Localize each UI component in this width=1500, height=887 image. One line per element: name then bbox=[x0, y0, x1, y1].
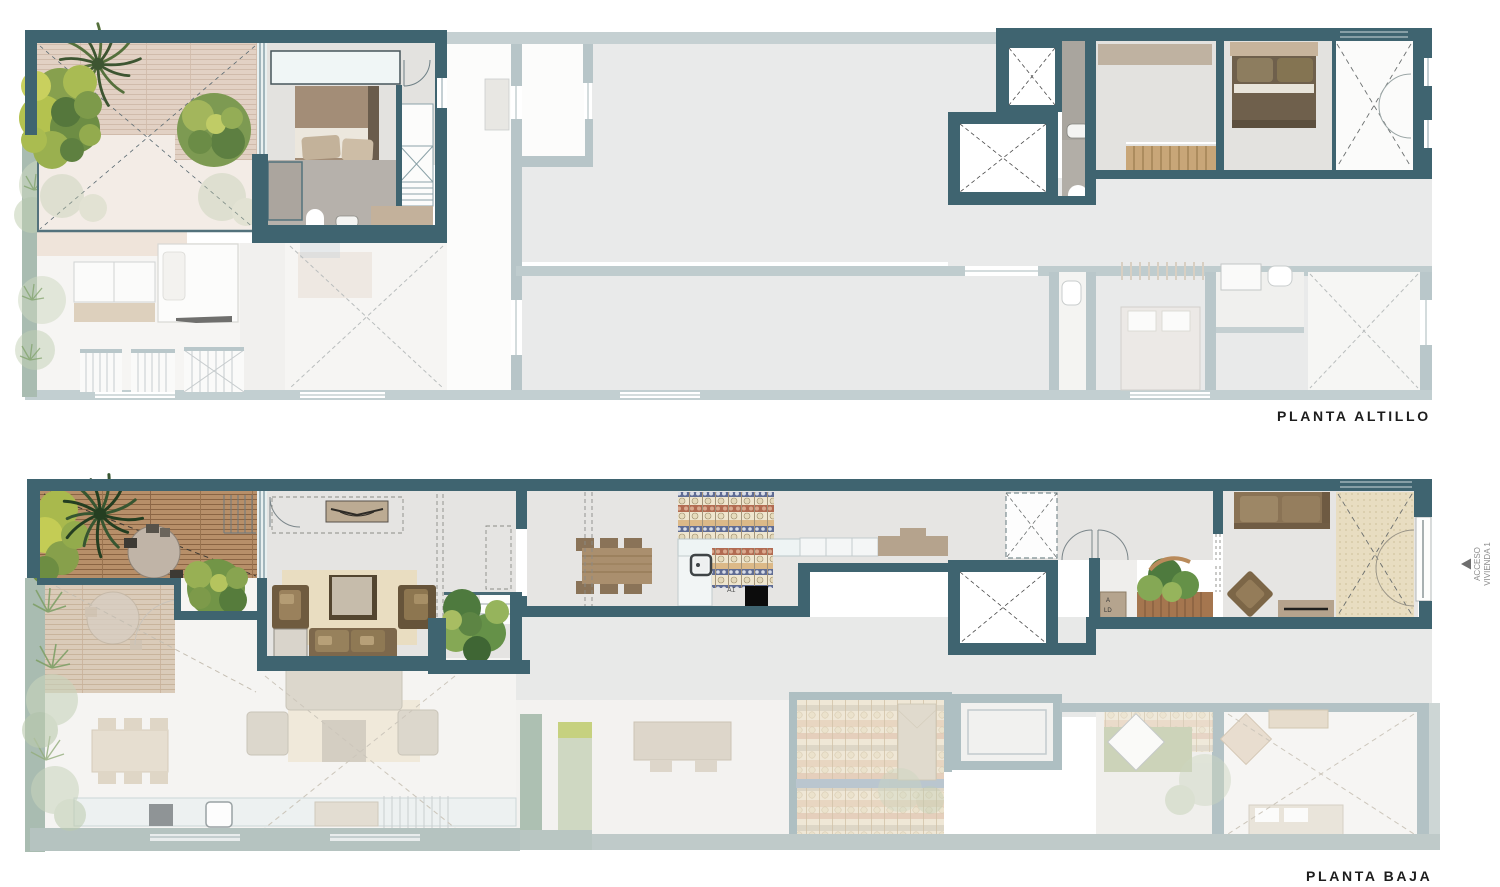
svg-text:PLANTA BAJA: PLANTA BAJA bbox=[1306, 868, 1432, 884]
svg-text:PLANTA ALTILLO: PLANTA ALTILLO bbox=[1277, 408, 1431, 424]
svg-text:ACCESO: ACCESO bbox=[1473, 547, 1482, 581]
svg-text:LD: LD bbox=[1104, 608, 1112, 614]
svg-text:A: A bbox=[1106, 598, 1110, 604]
svg-text:A1: A1 bbox=[727, 587, 736, 594]
svg-text:VIVIENDA 1: VIVIENDA 1 bbox=[1483, 542, 1492, 586]
